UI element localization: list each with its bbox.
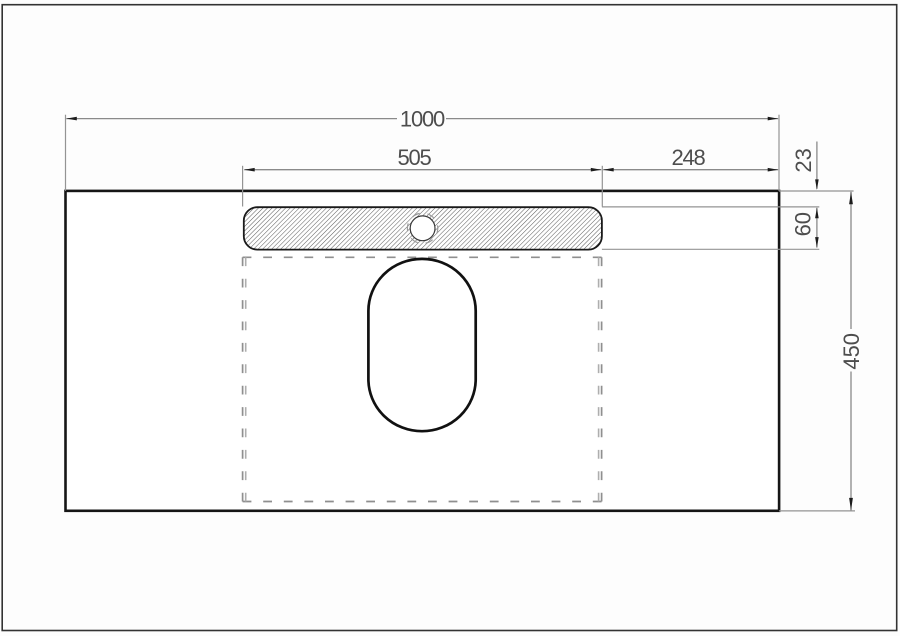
svg-text:23: 23	[791, 148, 816, 172]
svg-text:505: 505	[397, 145, 431, 170]
svg-text:60: 60	[791, 212, 816, 236]
svg-text:450: 450	[839, 333, 864, 370]
svg-text:1000: 1000	[400, 106, 445, 131]
svg-text:248: 248	[671, 145, 705, 170]
